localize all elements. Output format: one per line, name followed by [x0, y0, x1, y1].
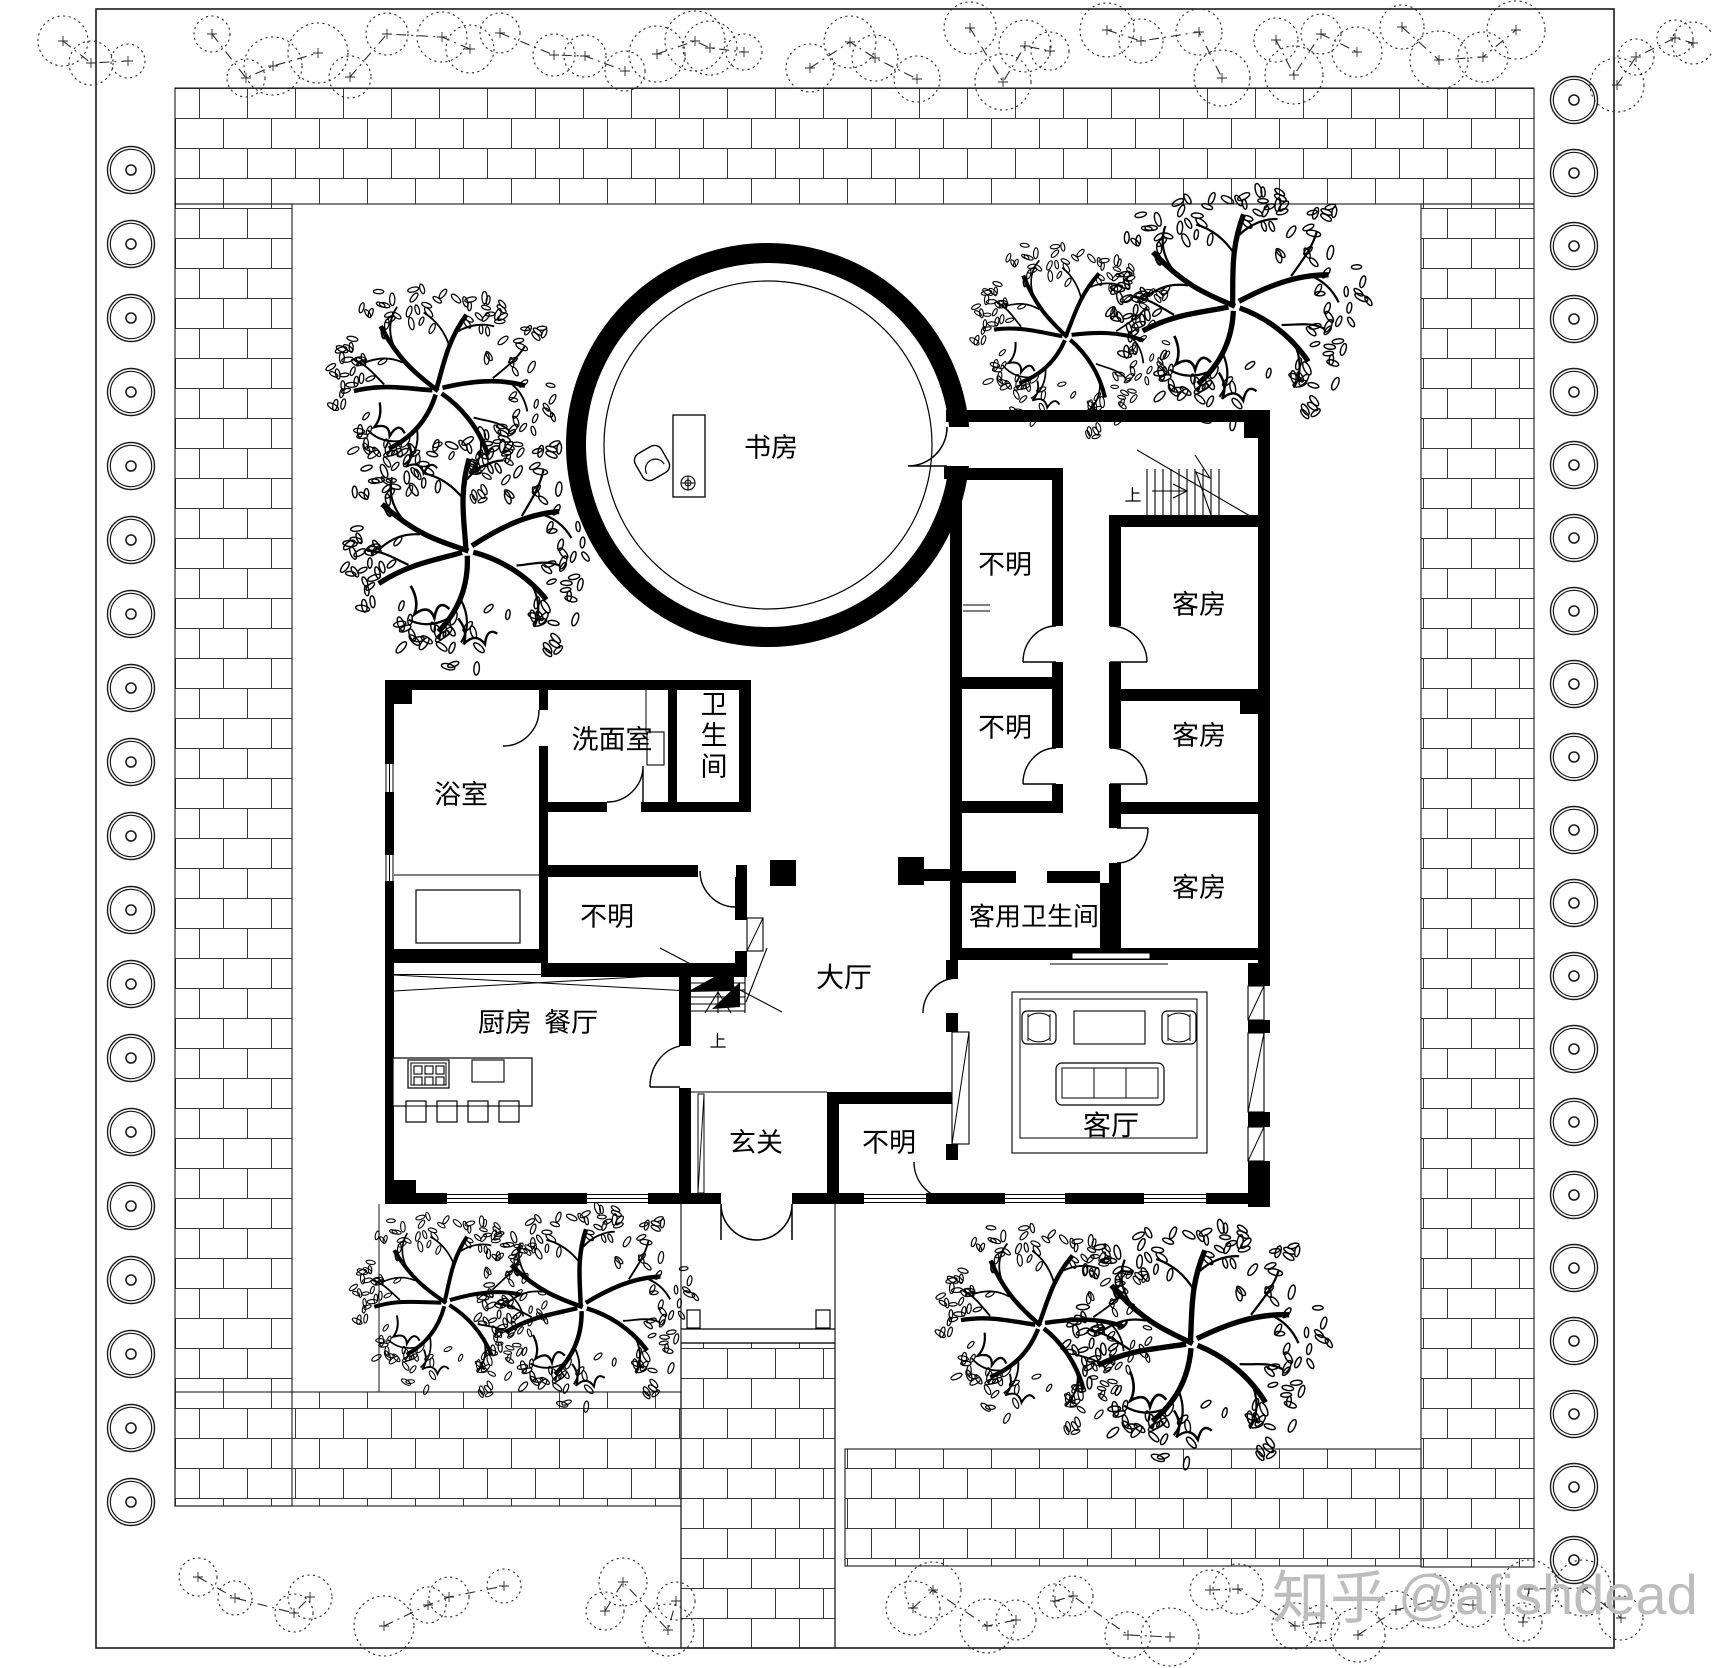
svg-text:@afishdead: @afishdead	[1398, 1563, 1698, 1626]
